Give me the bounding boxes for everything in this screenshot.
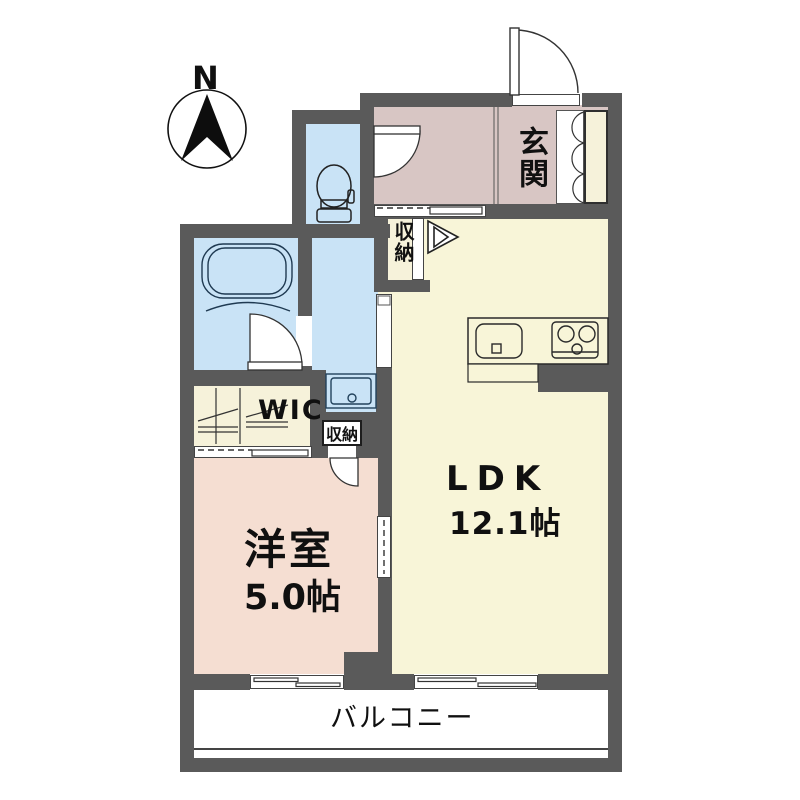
floor-plan: N 玄関 収納 LDK 12.1帖 WIC 収納 洋室 5.0帖 バルコニー xyxy=(0,0,800,800)
entrance-step-line xyxy=(494,107,498,204)
wic-sliding-door-symbol xyxy=(198,450,308,456)
shoe-cabinet-door-arcs-icon xyxy=(572,112,584,203)
hall-sliding-door-symbol xyxy=(377,207,482,214)
ldk-area-label: 12.1帖 xyxy=(449,508,562,541)
wic-label: WIC xyxy=(258,397,324,425)
western-room-label: 洋室 xyxy=(244,528,334,572)
ldk-label: LDK xyxy=(446,462,549,498)
bathroom-door-icon xyxy=(248,314,302,370)
hall-storage-label: 収納 xyxy=(389,221,413,279)
bathtub-icon xyxy=(202,244,292,311)
entrance-door-icon xyxy=(510,28,578,95)
washroom-door-notch xyxy=(378,296,390,305)
compass-north-label: N xyxy=(192,62,219,96)
western-room-area-label: 5.0帖 xyxy=(244,580,341,617)
room-storage-door-icon xyxy=(330,458,358,486)
fixtures-overlay xyxy=(0,0,800,800)
kitchen-counter xyxy=(468,318,608,382)
hall-storage-chevron-icon xyxy=(428,221,458,253)
room-storage-label: 収納 xyxy=(322,420,362,446)
compass-north-icon xyxy=(168,90,246,168)
window-pane-symbols xyxy=(254,678,536,687)
toilet-icon xyxy=(317,165,354,222)
entrance-label: 玄関 xyxy=(510,126,546,208)
balcony-label: バルコニー xyxy=(330,705,474,733)
washbasin-icon xyxy=(326,374,376,408)
toilet-door-icon xyxy=(374,126,420,177)
